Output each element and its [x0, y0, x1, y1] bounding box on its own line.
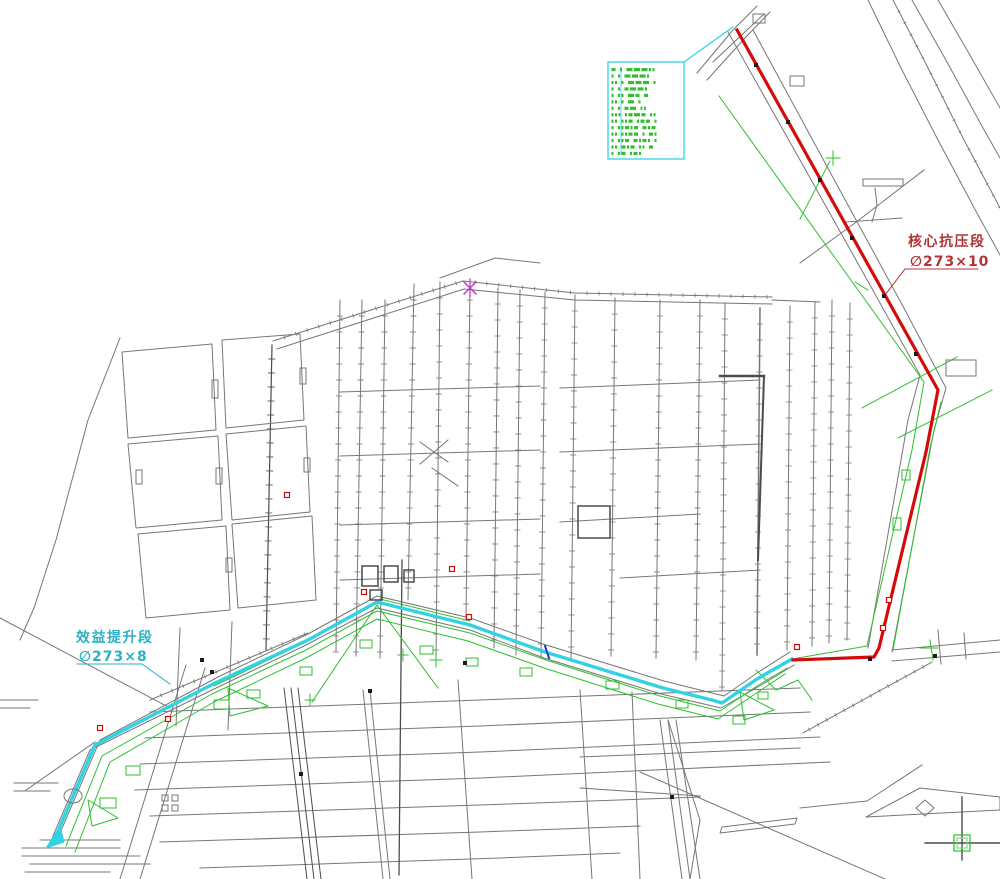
legend-text-row [643, 133, 645, 136]
legend-text-row [627, 145, 629, 148]
legend-text-row [645, 87, 647, 90]
legend-text-row [654, 81, 656, 84]
survey-point-red [795, 645, 800, 650]
map-line [200, 853, 620, 868]
survey-point-red [887, 598, 892, 603]
map-line [893, 402, 941, 650]
legend-text-row [625, 113, 627, 116]
legend-text-row [628, 100, 634, 103]
legend-text-row [622, 120, 624, 123]
legend-text-row [638, 87, 644, 90]
legend-text-row [643, 126, 647, 129]
legend-text-row [644, 94, 648, 97]
legend-text-row [622, 152, 626, 155]
map-line [938, 0, 1000, 108]
map-structure [172, 805, 178, 811]
legend-text-row [618, 94, 620, 97]
legend-text-row [615, 81, 617, 84]
survey-point-red [881, 626, 886, 631]
legend-text-row [654, 113, 656, 116]
map-line [580, 690, 592, 879]
map-line [440, 258, 540, 278]
map-line [463, 281, 772, 297]
legend-text-row [615, 113, 617, 116]
legend-text-row [625, 133, 627, 136]
legend-text-row [612, 139, 614, 142]
map-line [893, 0, 1000, 208]
annotation-labels: 核心抗压段 ∅273×10 效益提升段 ∅273×8 [76, 233, 989, 665]
green-plot-marker [466, 658, 478, 666]
map-line [757, 308, 760, 655]
legend-text-row [615, 145, 617, 148]
survey-point-black [299, 772, 303, 776]
legend-text-row [625, 139, 629, 142]
map-line [277, 289, 464, 349]
map-line [138, 526, 230, 618]
legend-text-row [625, 126, 629, 129]
map-line [676, 720, 700, 879]
map-line [560, 380, 760, 388]
legend-text-row [643, 139, 647, 142]
legend-text-row [646, 120, 650, 123]
red-section-spec: ∅273×10 [910, 254, 989, 270]
map-line [494, 288, 498, 648]
map-line [140, 737, 820, 764]
legend-text-row [648, 126, 650, 129]
legend-text-row [622, 133, 624, 136]
legend-text-row [612, 74, 614, 77]
legend-text-row [628, 81, 634, 84]
map-structure [362, 566, 378, 586]
legend-text-row [619, 113, 621, 116]
map-line [340, 450, 540, 456]
map-structure [300, 368, 306, 384]
legend-text-row [637, 120, 639, 123]
legend-text-row [630, 87, 636, 90]
map-line [571, 295, 575, 660]
legend-text-row [634, 152, 638, 155]
legend-text-row [612, 126, 614, 129]
legend-text-row [620, 68, 622, 71]
map-line [803, 662, 932, 733]
map-line [222, 334, 304, 428]
map-line [720, 818, 797, 833]
survey-point-black [850, 236, 854, 240]
survey-point-red [166, 717, 171, 722]
legend-text-row [612, 145, 614, 148]
legend-text-row [634, 68, 640, 71]
map-line [145, 712, 810, 738]
legend-text-row [612, 87, 614, 90]
map-line [892, 640, 1000, 650]
legend-text-row [642, 68, 648, 71]
legend-text-row [629, 120, 633, 123]
survey-point-black [868, 657, 872, 661]
map-line [458, 680, 472, 879]
legend-text-row [618, 126, 620, 129]
legend-text-row [622, 139, 624, 142]
legend-text-row [612, 120, 614, 123]
map-line [846, 218, 902, 222]
cyan-label-leader [142, 664, 170, 684]
green-plot-marker [300, 667, 312, 675]
legend-text-row [625, 107, 629, 110]
map-structure [212, 380, 218, 398]
survey-point-black [786, 120, 790, 124]
map-line [408, 284, 414, 600]
map-line [135, 762, 830, 790]
map-line [847, 303, 850, 640]
green-plot-marker [360, 640, 372, 648]
legend-text-row [648, 139, 650, 142]
map-structure [304, 458, 310, 472]
survey-point-red [362, 590, 367, 595]
generated-map-layers [0, 0, 1000, 879]
legend-text-row [615, 120, 617, 123]
legend-text-row [631, 145, 635, 148]
legend-text-row [652, 126, 656, 129]
red-pipeline-route [737, 30, 938, 660]
map-structure [384, 566, 398, 582]
legend-text-row [634, 113, 640, 116]
survey-point-black [914, 352, 918, 356]
map-structure [216, 468, 222, 484]
legend-text-row [612, 94, 614, 97]
legend-text-row [640, 74, 646, 77]
map-line [640, 772, 885, 879]
map-line [226, 426, 310, 520]
legend-text-row [634, 126, 638, 129]
legend-text-row [649, 133, 653, 136]
cyan-section-name: 效益提升段 [76, 629, 154, 646]
survey-point-red [450, 567, 455, 572]
map-line [620, 570, 760, 578]
legend-text-row [647, 74, 649, 77]
map-line [340, 386, 540, 392]
legend-text-row [615, 133, 617, 136]
map-line [356, 300, 362, 656]
green-plot-marker [520, 668, 532, 676]
map-line [284, 688, 307, 879]
legend-text-row [649, 145, 653, 148]
map-line [772, 300, 820, 302]
map-line [787, 306, 790, 650]
map-structure [863, 179, 903, 186]
legend-text-row [622, 100, 624, 103]
legend-text-row [612, 133, 614, 136]
legend-text-row [618, 107, 620, 110]
map-line [898, 390, 992, 438]
map-line [632, 692, 640, 879]
map-line [20, 338, 120, 640]
legend-text-row [618, 152, 620, 155]
legend-leader-line [684, 27, 733, 62]
legend-text-row [630, 107, 636, 110]
map-line [930, 640, 933, 660]
survey-point-black [754, 63, 758, 67]
map-line [892, 652, 1000, 661]
map-line [912, 0, 1000, 158]
survey-point-black [463, 661, 467, 665]
map-line [560, 514, 700, 522]
map-line [580, 748, 800, 757]
legend-text-row [612, 81, 614, 84]
map-structure [136, 470, 142, 484]
legend-text-row [632, 74, 638, 77]
map-line [232, 516, 316, 608]
map-line [380, 599, 470, 621]
legend-text-row [653, 68, 655, 71]
map-structure [172, 795, 178, 801]
legend-text-row [618, 74, 620, 77]
map-structure [226, 558, 232, 572]
legend-text-row [650, 113, 652, 116]
survey-point-black [368, 689, 372, 693]
legend-text-row [612, 113, 614, 116]
survey-point-red [285, 493, 290, 498]
green-plot-marker [247, 690, 260, 698]
survey-point-black [210, 670, 214, 674]
survey-point-black [200, 658, 204, 662]
legend-text-row [622, 81, 624, 84]
legend-text-row [630, 152, 632, 155]
map-structure [790, 76, 804, 86]
legend-text-row [639, 100, 641, 103]
legend-text-row [622, 126, 624, 129]
map-line [432, 468, 458, 486]
legend-text-row [642, 113, 646, 116]
map-line [420, 440, 448, 464]
map-line [812, 302, 815, 646]
survey-point-black [670, 795, 674, 799]
legend-text-row [643, 145, 645, 148]
map-line [541, 292, 545, 657]
map-line [122, 344, 216, 438]
legend-text-row [641, 107, 643, 110]
legend-text-row [629, 133, 633, 136]
legend-text-row [618, 87, 620, 90]
map-line [516, 290, 520, 655]
legend-text-row [655, 120, 657, 123]
legend-text-row [634, 139, 638, 142]
legend-text-row [641, 120, 645, 123]
cyan-section-spec: ∅273×8 [79, 649, 148, 665]
cad-drawing: 核心抗压段 ∅273×10 效益提升段 ∅273×8 [0, 0, 1000, 879]
cyan-pipeline-end [46, 826, 64, 848]
legend-text-row [643, 81, 649, 84]
survey-point-red [98, 726, 103, 731]
legend-text-row [625, 120, 627, 123]
legend-text-row [625, 74, 631, 77]
legend-text-row [612, 68, 616, 71]
legend-text-row [622, 94, 624, 97]
legend-text-row [612, 100, 614, 103]
survey-point-black [933, 654, 937, 658]
legend-text-row [639, 152, 641, 155]
green-plot-marker [420, 646, 433, 654]
map-line [150, 797, 700, 816]
legend-text-row [612, 107, 614, 110]
legend-text-row [644, 107, 646, 110]
map-line [722, 303, 725, 690]
map-line [697, 6, 757, 73]
legend-text-row [628, 94, 634, 97]
survey-point-black [882, 294, 886, 298]
map-line [872, 188, 877, 222]
green-plot-marker [100, 798, 116, 808]
map-line [560, 444, 760, 452]
map-structure [946, 360, 976, 376]
map-line [713, 14, 764, 62]
green-plot-marker [126, 766, 140, 775]
legend-text-row [631, 126, 633, 129]
map-line [120, 665, 186, 879]
map-line [340, 574, 540, 580]
survey-point-red [467, 615, 472, 620]
map-canvas: 核心抗压段 ∅273×10 效益提升段 ∅273×8 [0, 0, 1000, 879]
legend-text-row [612, 152, 614, 155]
map-line [866, 788, 1000, 817]
legend-text-row [625, 87, 629, 90]
legend-text-row [639, 145, 641, 148]
map-line [800, 765, 922, 808]
legend-text-row [627, 68, 633, 71]
map-line [88, 800, 118, 826]
map-line [340, 519, 540, 525]
legend-text-row [629, 113, 633, 116]
legend-text-row [634, 133, 638, 136]
legend-text-row [655, 133, 657, 136]
legend-text-row [639, 139, 641, 142]
map-line [728, 32, 920, 375]
legend-text-row [636, 81, 642, 84]
map-line [696, 300, 700, 660]
legend-text-row [655, 139, 657, 142]
survey-point-black [818, 178, 822, 182]
map-line [273, 281, 463, 341]
map-line [580, 788, 700, 796]
legend-text-row [649, 68, 651, 71]
legend-text-row [618, 139, 620, 142]
map-line [829, 300, 832, 643]
red-section-name: 核心抗压段 [908, 233, 986, 250]
legend-text-row [622, 145, 626, 148]
map-structure [578, 506, 610, 538]
green-plot-marker [758, 692, 768, 699]
legend-text-row [615, 100, 617, 103]
map-line [938, 630, 941, 664]
legend-text-row [636, 94, 640, 97]
